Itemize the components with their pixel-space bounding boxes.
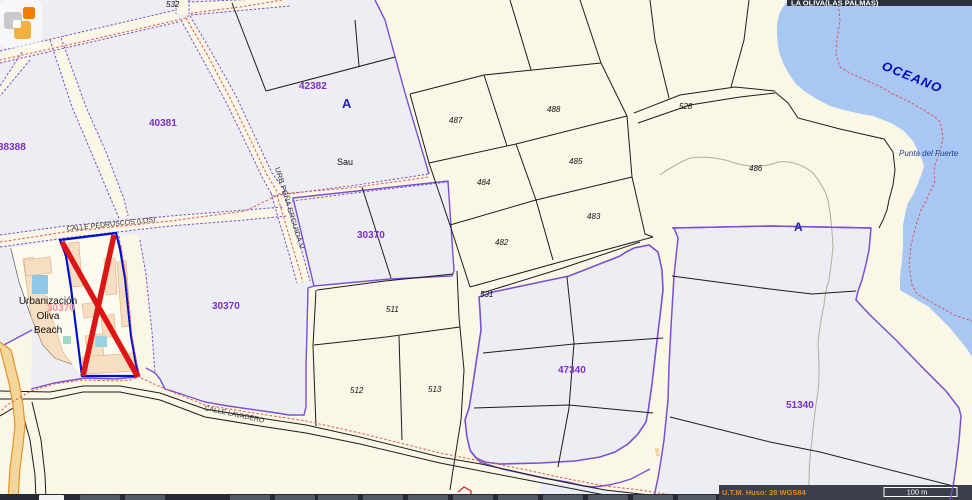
- svg-text:Beach: Beach: [34, 325, 62, 336]
- svg-text:488: 488: [547, 105, 561, 114]
- svg-text:531: 531: [480, 290, 493, 299]
- svg-text:Sau: Sau: [337, 157, 353, 167]
- svg-text:Punta del Fuerte: Punta del Fuerte: [899, 149, 959, 158]
- svg-text:30370: 30370: [212, 301, 240, 312]
- svg-text:512: 512: [350, 386, 364, 395]
- svg-text:486: 486: [749, 164, 763, 173]
- svg-text:528: 528: [679, 102, 693, 111]
- svg-text:532: 532: [166, 0, 180, 9]
- svg-text:513: 513: [428, 385, 442, 394]
- svg-text:484: 484: [477, 178, 491, 187]
- svg-text:A: A: [342, 96, 352, 111]
- svg-text:47340: 47340: [558, 365, 586, 376]
- svg-text:482: 482: [495, 238, 509, 247]
- svg-text:487: 487: [449, 116, 463, 125]
- svg-text:483: 483: [587, 212, 601, 221]
- svg-text:100 m: 100 m: [907, 488, 928, 497]
- svg-text:30370: 30370: [357, 230, 385, 241]
- svg-text:Urbanización: Urbanización: [19, 296, 77, 307]
- svg-text:40381: 40381: [149, 118, 177, 129]
- svg-text:38388: 38388: [0, 142, 26, 153]
- svg-text:485: 485: [569, 157, 583, 166]
- svg-text:LA OLIVA(LAS PALMAS): LA OLIVA(LAS PALMAS): [791, 0, 879, 8]
- svg-text:511: 511: [386, 305, 399, 314]
- svg-text:Oliva: Oliva: [37, 311, 60, 322]
- svg-text:42382: 42382: [299, 81, 327, 92]
- svg-text:51340: 51340: [786, 400, 814, 411]
- svg-text:A: A: [794, 220, 803, 234]
- svg-text:U.T.M. Huso: 28 WGS84: U.T.M. Huso: 28 WGS84: [722, 488, 807, 497]
